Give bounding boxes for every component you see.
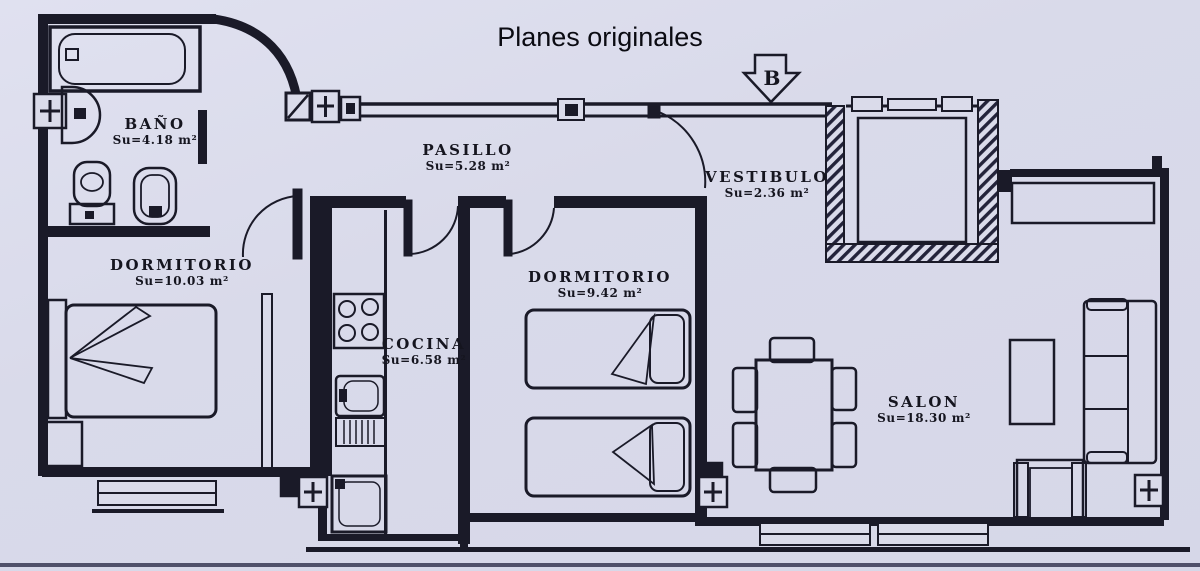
room-area: Su=2.36 m² <box>705 186 829 201</box>
salon-furniture <box>733 183 1156 520</box>
chair-icon <box>733 368 757 412</box>
door-dormitorio1 <box>243 189 302 259</box>
bidet-icon <box>134 168 176 224</box>
room-area: Su=10.03 m² <box>110 274 254 289</box>
floor-plan: Planes originales B BAÑO Su=4.18 m² PASI… <box>0 0 1200 571</box>
room-name: SALON <box>877 394 971 411</box>
wall-junction-box <box>558 99 584 120</box>
room-area: Su=6.58 m² <box>382 353 467 368</box>
chair-icon <box>832 368 856 410</box>
door-dormitorio2 <box>504 200 554 256</box>
orientation-marker-label: B <box>764 68 781 88</box>
page-title: Planes originales <box>497 22 703 53</box>
window-dorm1 <box>98 481 216 505</box>
dining-table-icon <box>756 360 832 470</box>
kitchen-furniture <box>332 210 387 534</box>
room-label-dormitorio2: DORMITORIO Su=9.42 m² <box>528 269 672 301</box>
armchair-icon <box>1014 460 1086 520</box>
sink-icon <box>336 376 384 416</box>
dormitorio1-furniture <box>44 294 272 474</box>
window-salon-left <box>760 523 870 545</box>
chair-icon <box>832 423 856 467</box>
double-bed-icon <box>48 300 216 418</box>
radiator-icon <box>312 91 339 122</box>
radiator-icon <box>1135 475 1163 506</box>
room-label-dormitorio1: DORMITORIO Su=10.03 m² <box>110 257 254 289</box>
chair-icon <box>733 423 757 467</box>
room-label-bano: BAÑO Su=4.18 m² <box>113 116 198 148</box>
room-name: BAÑO <box>113 116 198 133</box>
room-name: DORMITORIO <box>110 257 254 274</box>
single-bed-icon <box>526 310 690 388</box>
dishrack-icon <box>336 418 386 446</box>
elevator-shaft <box>826 97 998 262</box>
room-area: Su=5.28 m² <box>422 159 513 174</box>
toilet-icon <box>70 162 114 224</box>
wardrobe-icon <box>262 294 272 474</box>
stove-icon <box>334 294 384 348</box>
room-area: Su=18.30 m² <box>877 411 971 426</box>
room-area: Su=9.42 m² <box>528 286 672 301</box>
dormitorio2-furniture <box>526 310 690 496</box>
coffee-table-icon <box>1010 340 1054 424</box>
nightstand-icon <box>44 422 82 466</box>
washbasin-icon <box>62 87 100 143</box>
single-bed-icon <box>526 418 690 496</box>
room-name: PASILLO <box>422 142 513 159</box>
room-label-pasillo: PASILLO Su=5.28 m² <box>422 142 513 174</box>
room-name: DORMITORIO <box>528 269 672 286</box>
sideboard-icon <box>1012 183 1154 223</box>
radiator-icon <box>281 477 327 507</box>
chair-icon <box>770 468 816 492</box>
room-name: VESTIBULO <box>705 169 829 186</box>
sofa-icon <box>1084 299 1156 463</box>
room-label-vestibulo: VESTIBULO Su=2.36 m² <box>705 169 829 201</box>
room-name: COCINA <box>382 336 467 353</box>
washing-machine-icon <box>332 476 386 532</box>
room-label-cocina: COCINA Su=6.58 m² <box>382 336 467 368</box>
room-area: Su=4.18 m² <box>113 133 198 148</box>
bathtub-icon <box>50 27 200 91</box>
chair-icon <box>770 338 814 362</box>
door-cocina <box>404 200 458 256</box>
room-label-salon: SALON Su=18.30 m² <box>877 394 971 426</box>
window-salon-right <box>878 523 988 545</box>
